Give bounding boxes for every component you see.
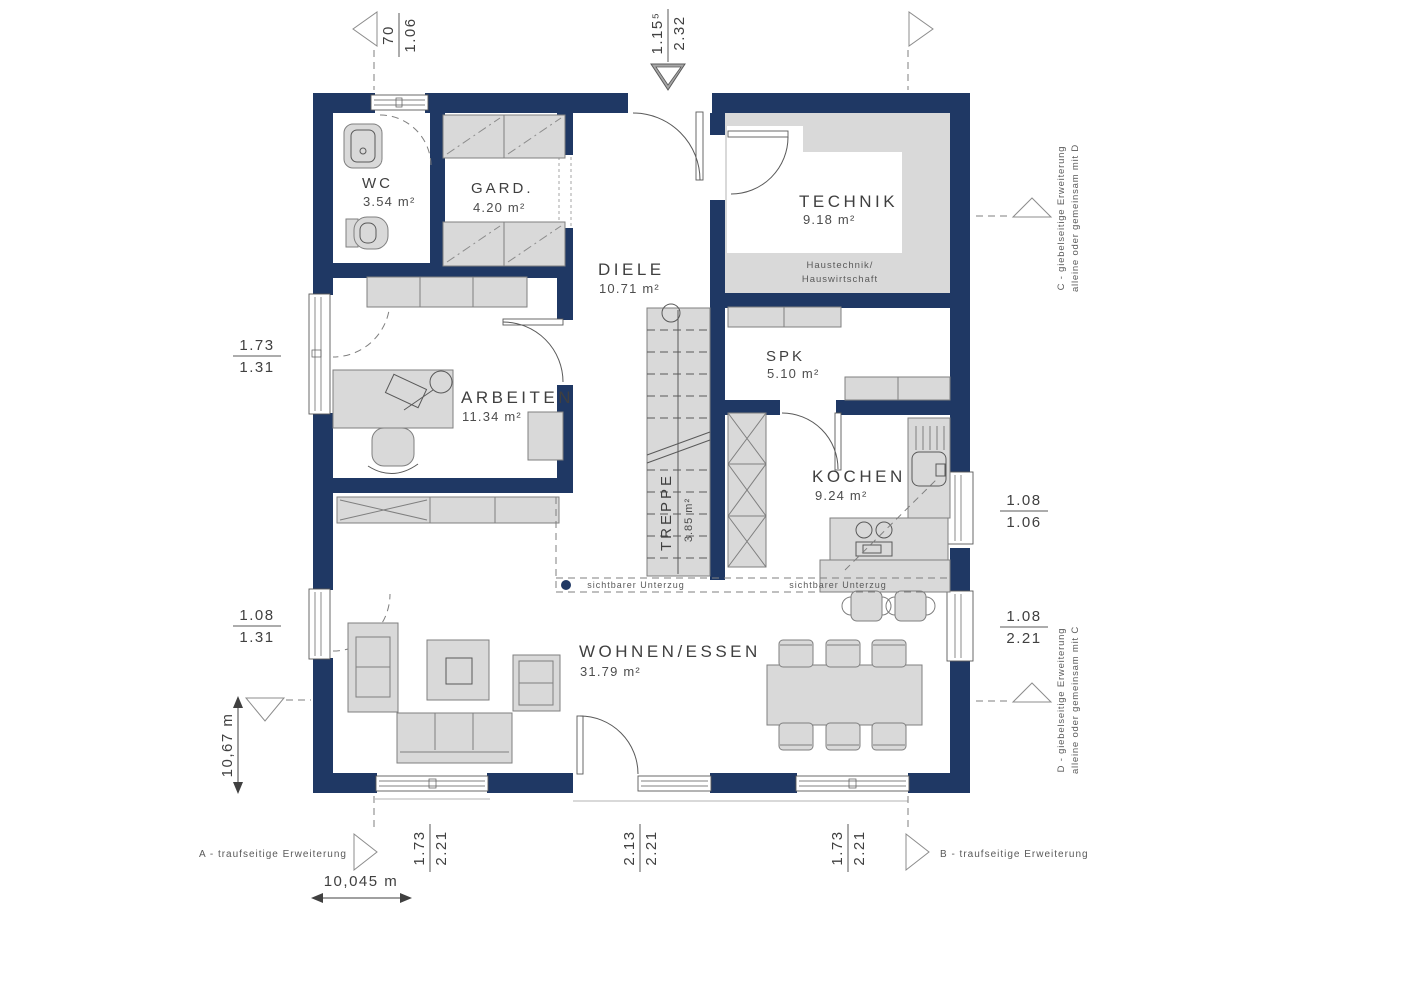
- marker-triangle-top-left: [353, 12, 377, 46]
- svg-text:2.13: 2.13: [621, 830, 638, 865]
- wall-bottom: [710, 773, 797, 793]
- room-label-wohnen-essen: WOHNEN/ESSEN 31.79 m²: [579, 642, 761, 679]
- svg-text:1.08: 1.08: [239, 607, 274, 624]
- svg-text:KOCHEN: KOCHEN: [812, 467, 906, 486]
- extension-a: A - traufseitige Erweiterung: [199, 796, 377, 870]
- marker-triangle-b: [906, 834, 929, 870]
- svg-text:A - traufseitige Erweiterung: A - traufseitige Erweiterung: [199, 849, 347, 860]
- wc-sink: [344, 124, 382, 168]
- svg-text:4.20 m²: 4.20 m²: [473, 200, 525, 215]
- arbeiten-door: [503, 319, 563, 382]
- svg-text:1.31: 1.31: [239, 629, 274, 646]
- wall-technik-spk: [725, 293, 950, 308]
- office-chair: [368, 428, 418, 474]
- dim-top-left: 70 1.06: [380, 13, 419, 57]
- entrance-door: [633, 112, 703, 180]
- svg-text:9.24 m²: 9.24 m²: [815, 488, 867, 503]
- window-arbeiten-left: [309, 294, 330, 414]
- wall-below-arbeiten: [313, 478, 572, 493]
- svg-text:GARD.: GARD.: [471, 180, 534, 197]
- wall-diele-right-column: [710, 200, 725, 580]
- wc-door-swing-dashed: [380, 115, 431, 166]
- svg-text:2.21: 2.21: [1006, 630, 1041, 647]
- coffee-table: [427, 640, 489, 700]
- dim-left-upper: 1.73 1.31: [233, 337, 281, 376]
- room-label-wc: WC 3.54 m²: [362, 175, 415, 209]
- svg-text:TECHNIK: TECHNIK: [799, 192, 898, 211]
- marker-triangle-c: [1013, 198, 1051, 217]
- window-wc-top: [371, 95, 428, 110]
- marker-triangle-left-bottom: [246, 698, 284, 721]
- dim-overall-width: 10,045 m: [311, 873, 412, 903]
- svg-text:WOHNEN/ESSEN: WOHNEN/ESSEN: [579, 642, 761, 661]
- svg-text:alleine oder gemeinsam mit D: alleine oder gemeinsam mit D: [1070, 144, 1081, 292]
- svg-text:1.15⁵: 1.15⁵: [649, 12, 666, 55]
- svg-text:10,045 m: 10,045 m: [324, 873, 399, 890]
- gard-wardrobe-bottom: [443, 222, 565, 266]
- extension-b: B - traufseitige Erweiterung: [906, 796, 1089, 870]
- dim-right-lower: 1.08 2.21: [1000, 608, 1048, 647]
- svg-text:1.73: 1.73: [829, 830, 846, 865]
- dim-bottom-center: 2.13 2.21: [621, 824, 660, 872]
- svg-text:1.31: 1.31: [239, 359, 274, 376]
- window-wohnen-left: [309, 589, 330, 659]
- window-essen-right: [947, 591, 973, 661]
- office-shelf: [367, 277, 527, 307]
- svg-text:1.73: 1.73: [239, 337, 274, 354]
- svg-text:2.21: 2.21: [433, 830, 450, 865]
- dining-chairs-bottom: [779, 723, 906, 750]
- wall-top: [425, 93, 628, 113]
- svg-text:1.06: 1.06: [1006, 514, 1041, 531]
- svg-text:3.54 m²: 3.54 m²: [363, 194, 415, 209]
- spk-kochen-door: [782, 413, 841, 470]
- armchair-left: [348, 623, 398, 712]
- marker-triangle-top-right: [909, 12, 933, 46]
- staircase: [647, 304, 710, 576]
- wall-left: [313, 413, 333, 590]
- extension-c: C - giebelseitige Erweiterung alleine od…: [976, 144, 1081, 292]
- wall-diele-technik: [710, 113, 725, 135]
- sofa: [397, 713, 512, 763]
- wall-right: [950, 548, 970, 593]
- dim-overall-height: 10,67 m: [219, 696, 311, 794]
- entrance-marker: [651, 50, 685, 90]
- wall-left: [313, 658, 333, 793]
- wall-top: [712, 93, 970, 113]
- room-label-kochen: KOCHEN 9.24 m²: [812, 467, 906, 503]
- marker-triangle-d: [1013, 683, 1051, 702]
- window-terrace-side: [638, 776, 711, 791]
- svg-text:1.08: 1.08: [1006, 608, 1041, 625]
- spk-shelf-right: [845, 377, 950, 400]
- dining-table: [767, 665, 922, 725]
- svg-text:D - giebelseitige Erweiterung: D - giebelseitige Erweiterung: [1056, 628, 1067, 773]
- svg-text:70: 70: [380, 25, 397, 45]
- svg-text:2.32: 2.32: [671, 15, 688, 50]
- svg-text:DIELE: DIELE: [598, 260, 665, 279]
- wall-spk-kochen: [836, 400, 950, 415]
- unterzug-label-right: sichtbarer Unterzug: [789, 580, 887, 590]
- wall-left: [313, 93, 333, 295]
- wall-bottom: [487, 773, 573, 793]
- floorplan-drawing: sichtbarer Unterzug sichtbarer Unterzug …: [0, 0, 1414, 1000]
- svg-text:1.08: 1.08: [1006, 492, 1041, 509]
- room-label-diele: DIELE 10.71 m²: [598, 260, 665, 296]
- svg-text:WC: WC: [362, 175, 393, 192]
- window-essen-bottom: [796, 776, 909, 791]
- window-kochen-right: [947, 472, 973, 544]
- armchair-right: [513, 655, 560, 711]
- arbeiten-window-swing-dashed: [333, 300, 390, 357]
- marker-triangle-a: [354, 834, 377, 870]
- bar-stools: [842, 591, 935, 621]
- kitchen-tall-cabinet: [728, 413, 766, 567]
- kitchen-counter-bottom: [830, 518, 948, 560]
- svg-text:TREPPE: TREPPE: [658, 473, 675, 551]
- office-desk: [333, 370, 453, 428]
- svg-text:Hauswirtschaft: Hauswirtschaft: [802, 274, 878, 285]
- svg-text:1.06: 1.06: [402, 17, 419, 52]
- svg-text:11.34 m²: 11.34 m²: [462, 409, 522, 424]
- svg-text:9.18 m²: 9.18 m²: [803, 212, 855, 227]
- svg-text:2.21: 2.21: [643, 830, 660, 865]
- dim-entry: 1.15⁵ 2.32: [649, 9, 688, 57]
- unterzug-dot: [561, 580, 571, 590]
- window-wohnen-bottom: [376, 776, 488, 791]
- svg-text:5.10 m²: 5.10 m²: [767, 366, 819, 381]
- wc-toilet: [346, 217, 388, 249]
- kitchen-counter-right: [908, 418, 950, 518]
- svg-text:ARBEITEN: ARBEITEN: [461, 388, 574, 407]
- terrace-door: [577, 716, 638, 774]
- svg-text:3.85 m²: 3.85 m²: [683, 498, 695, 542]
- svg-text:Haustechnik/: Haustechnik/: [807, 260, 874, 271]
- svg-text:SPK: SPK: [766, 348, 805, 365]
- sideboard: [337, 497, 559, 523]
- dim-left-lower: 1.08 1.31: [233, 607, 281, 646]
- unterzug-label-left: sichtbarer Unterzug: [587, 580, 685, 590]
- wall-right: [950, 93, 970, 478]
- office-side-cabinet: [528, 412, 563, 460]
- dim-bottom-right: 1.73 2.21: [829, 824, 868, 872]
- svg-text:alleine oder gemeinsam mit C: alleine oder gemeinsam mit C: [1070, 626, 1081, 774]
- dining-chairs-top: [779, 640, 906, 667]
- dim-bottom-left: 1.73 2.21: [411, 824, 450, 872]
- wall-right: [950, 660, 970, 793]
- svg-text:10,67 m: 10,67 m: [219, 713, 236, 778]
- svg-text:10.71 m²: 10.71 m²: [599, 281, 660, 296]
- dim-right-upper: 1.08 1.06: [1000, 492, 1048, 531]
- svg-text:C - giebelseitige Erweiterung: C - giebelseitige Erweiterung: [1056, 146, 1067, 291]
- svg-text:31.79 m²: 31.79 m²: [580, 664, 641, 679]
- room-label-gard: GARD. 4.20 m²: [471, 180, 534, 215]
- svg-text:B - traufseitige Erweiterung: B - traufseitige Erweiterung: [940, 849, 1089, 860]
- svg-text:2.21: 2.21: [851, 830, 868, 865]
- gard-wardrobe-top: [443, 115, 565, 158]
- extension-d: D - giebelseitige Erweiterung alleine od…: [976, 626, 1081, 774]
- svg-text:1.73: 1.73: [411, 830, 428, 865]
- floorplan-page: sichtbarer Unterzug sichtbarer Unterzug …: [0, 0, 1414, 1000]
- room-label-spk: SPK 5.10 m²: [766, 348, 819, 381]
- spk-shelf-top: [728, 307, 841, 327]
